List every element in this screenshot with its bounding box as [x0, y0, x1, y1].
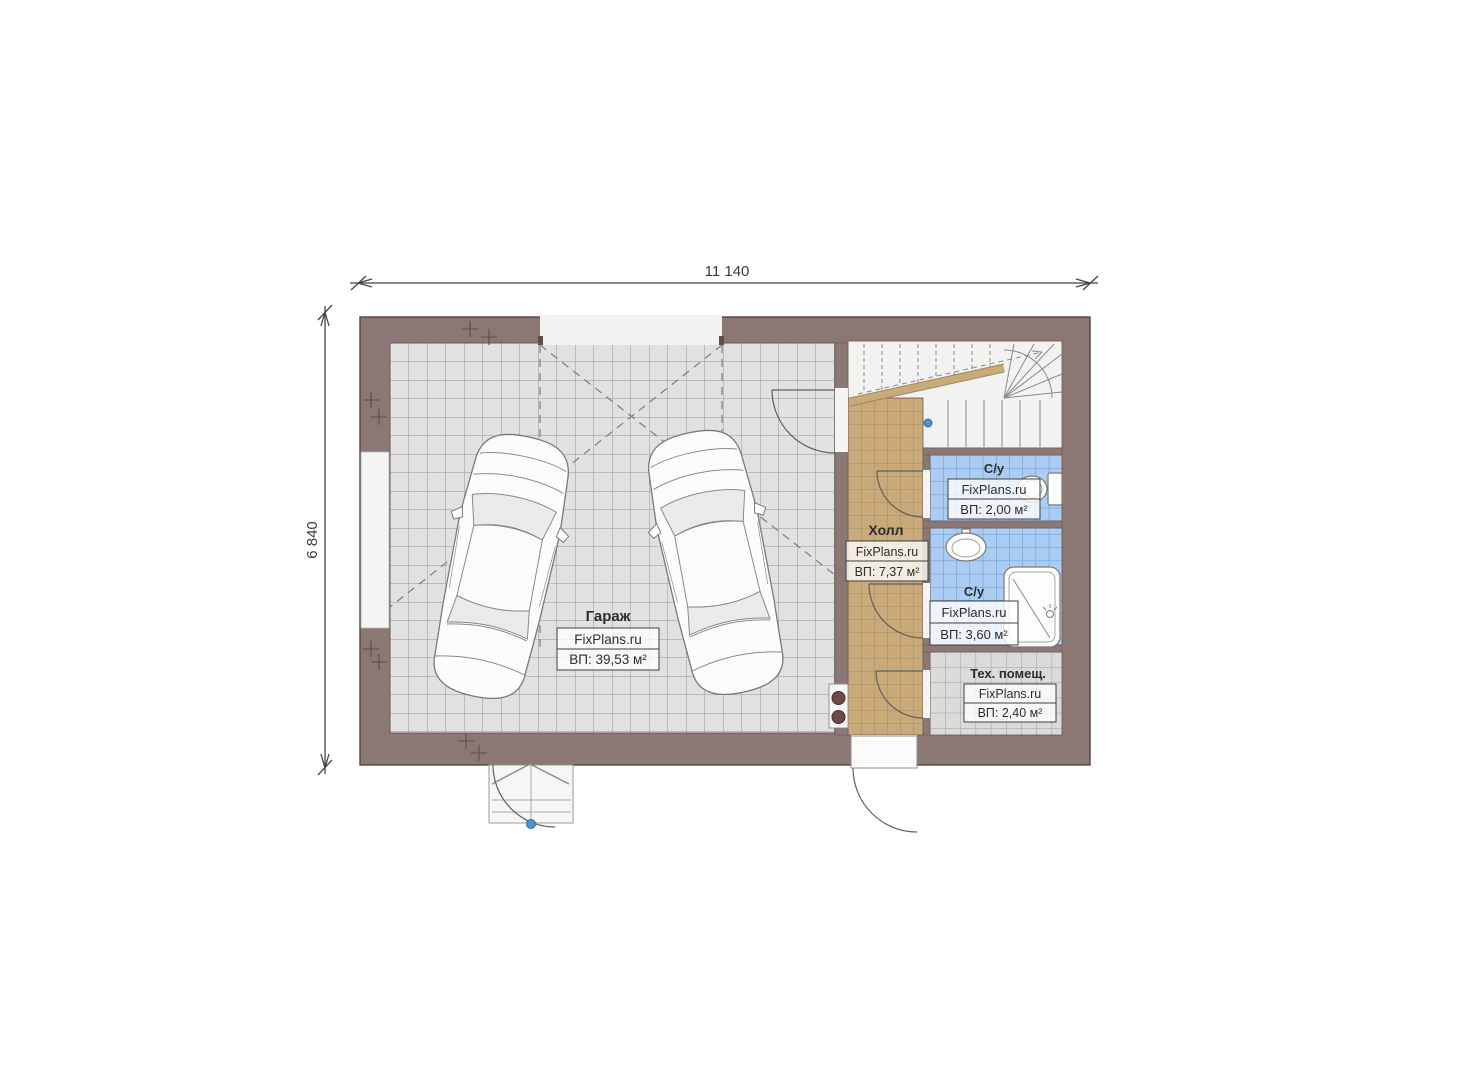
meter-icon	[832, 692, 845, 705]
floor-plan-drawing: Гараж FixPlans.ru ВП: 39,53 м² Холл FixP…	[0, 0, 1474, 1080]
wc-large-brand: FixPlans.ru	[941, 605, 1006, 620]
wall-stairs-bathroom	[923, 448, 1062, 455]
porch-marker-dot	[527, 820, 536, 829]
wc-small-area: ВП: 2,00 м²	[960, 502, 1028, 517]
entry-door-leaf	[851, 736, 917, 768]
window-left	[361, 452, 389, 628]
label-tech: Тех. помещ. FixPlans.ru ВП: 2,40 м²	[964, 666, 1056, 722]
dimension-left: 6 840	[304, 305, 332, 775]
tech-area: ВП: 2,40 м²	[978, 706, 1043, 720]
wall-bathrooms	[923, 521, 1062, 528]
garage-door-opening	[540, 315, 722, 345]
garage-brand: FixPlans.ru	[574, 632, 642, 647]
garage-area: ВП: 39,53 м²	[569, 652, 647, 667]
meter-icon	[832, 711, 845, 724]
wc-large-name: С/у	[964, 584, 985, 599]
garage-door-jamb-right	[719, 336, 724, 345]
door-opening-wc-small	[923, 470, 930, 518]
tech-brand: FixPlans.ru	[979, 687, 1042, 701]
hall-name: Холл	[868, 522, 903, 538]
stair-marker-dot	[924, 419, 932, 427]
dimension-top: 11 140	[350, 263, 1098, 290]
garage-name: Гараж	[586, 608, 631, 625]
floor-plan-page: Гараж FixPlans.ru ВП: 39,53 м² Холл FixP…	[0, 0, 1474, 1080]
door-opening-wc-large	[923, 583, 930, 638]
entry-door-arc	[853, 768, 917, 832]
wc-small-name: С/у	[984, 461, 1005, 476]
hall-brand: FixPlans.ru	[856, 545, 919, 559]
dimension-left-value: 6 840	[304, 521, 321, 559]
utility-meters	[829, 684, 848, 728]
hall-area: ВП: 7,37 м²	[855, 565, 920, 579]
wc-large-area: ВП: 3,60 м²	[940, 627, 1008, 642]
dimension-top-value: 11 140	[705, 263, 750, 280]
door-opening-garage-hall	[835, 388, 848, 452]
garage-door-jamb-left	[538, 336, 543, 345]
porch	[489, 764, 573, 829]
tech-name: Тех. помещ.	[970, 666, 1046, 681]
wc-small-brand: FixPlans.ru	[961, 482, 1026, 497]
door-opening-tech	[923, 670, 930, 718]
